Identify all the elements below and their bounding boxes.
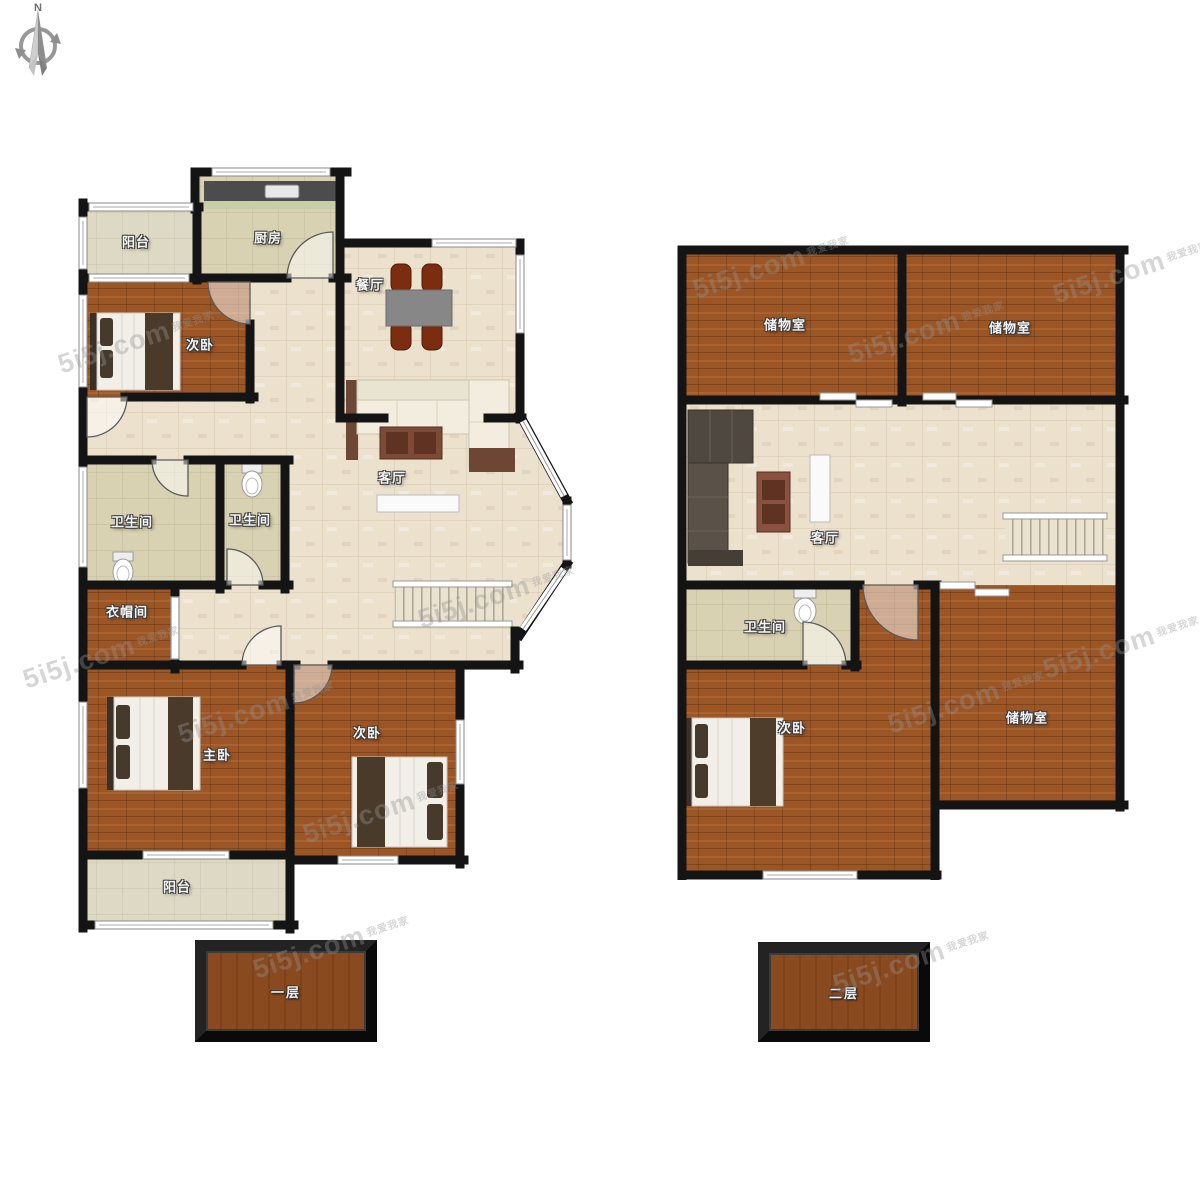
kitchen-counter <box>204 181 336 209</box>
room-label-living2: 客厅 <box>811 532 839 545</box>
floor1-tag: 一层 <box>195 940 377 1042</box>
bed-master <box>107 697 200 790</box>
room-label-dining: 餐厅 <box>356 279 384 292</box>
coffee-table-floor2 <box>757 472 790 532</box>
stairs-floor1 <box>393 581 512 627</box>
floor1-plan: 阳台 厨房 次卧 餐厅 客厅 卫生间 卫生间 衣帽间 主卧 次卧 阳台 <box>70 160 580 1030</box>
stairs-floor2 <box>1003 513 1107 561</box>
room-label-storage-bottom: 储物室 <box>1006 712 1048 725</box>
compass: N <box>10 2 66 88</box>
floor2-tag: 二层 <box>758 942 930 1042</box>
room-label-balcony-bottom: 阳台 <box>163 881 191 894</box>
room-label-bedroom-bottom: 次卧 <box>353 727 381 740</box>
floorplan-canvas: N <box>0 0 1200 1200</box>
room-label-living1: 客厅 <box>378 472 406 485</box>
toilet-bath-right <box>242 464 262 497</box>
room-label-balcony-top: 阳台 <box>122 236 150 249</box>
room-label-bedroom2: 次卧 <box>778 722 806 735</box>
bed-bedroom-bottom <box>352 757 447 847</box>
floor2-drawing <box>670 240 1130 880</box>
room-label-bath-left: 卫生间 <box>111 516 153 529</box>
compass-north-label: N <box>34 2 42 14</box>
floor2-plan: 储物室 储物室 客厅 卫生间 次卧 储物室 <box>670 240 1130 880</box>
toilet-bath-left <box>113 552 133 585</box>
room-label-kitchen: 厨房 <box>254 232 282 245</box>
bed-floor2 <box>686 718 783 806</box>
room-label-bath2: 卫生间 <box>744 621 786 634</box>
tv-stand-floor2 <box>810 455 830 522</box>
floor1-tag-label: 一层 <box>271 982 301 1001</box>
room-label-master: 主卧 <box>203 749 231 762</box>
bed-bedroom-top <box>90 313 180 390</box>
floor1-floors <box>83 172 567 927</box>
toilet-bath-floor2 <box>794 589 816 624</box>
room-label-bedroom-top: 次卧 <box>186 339 214 352</box>
room-label-storage-right: 储物室 <box>989 322 1031 335</box>
room-label-bath-right: 卫生间 <box>229 514 271 527</box>
floor1-drawing <box>70 160 580 1030</box>
room-label-storage-left: 储物室 <box>764 319 806 332</box>
tv-stand-floor1 <box>377 495 459 512</box>
floor2-tag-label: 二层 <box>829 983 859 1002</box>
room-label-cloakroom: 衣帽间 <box>106 606 148 619</box>
compass-icon <box>10 2 66 88</box>
coffee-table-floor1 <box>380 427 442 459</box>
